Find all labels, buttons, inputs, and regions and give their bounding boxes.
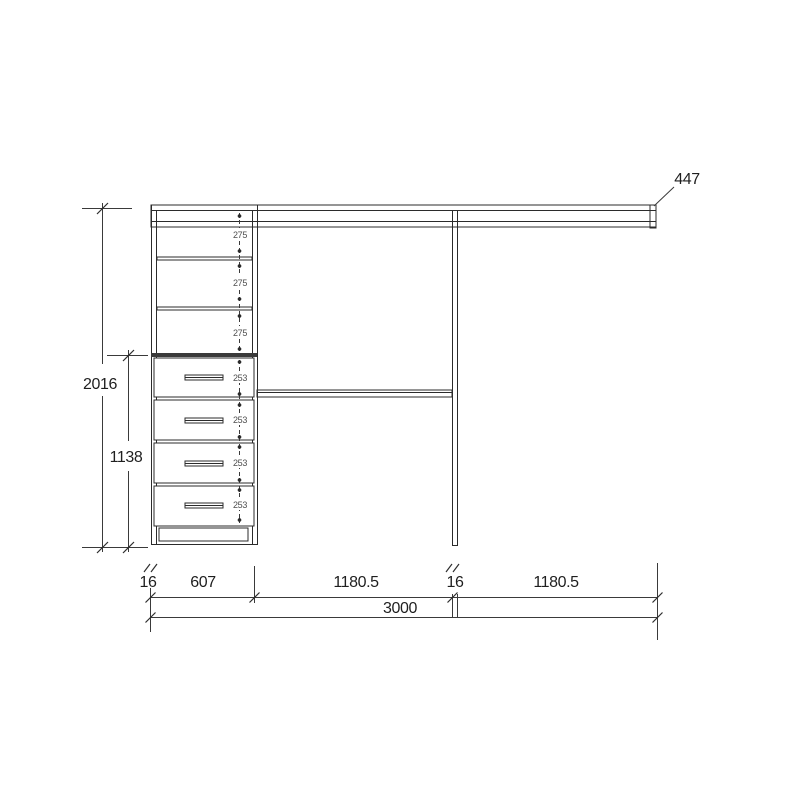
chain-dot — [238, 445, 242, 449]
label-drawer-height-2: 253 — [233, 415, 247, 425]
label-drawer-height-4: 253 — [233, 500, 247, 510]
micro-tick-left-16 — [151, 564, 157, 572]
label-drawer-height-3: 253 — [233, 458, 247, 468]
cabinet-shelf-1 — [157, 257, 252, 260]
middle-shelf-board — [257, 390, 452, 397]
label-width-seg-middle: 1180.5 — [333, 574, 379, 591]
chain-dot — [238, 403, 242, 407]
chain-dot — [238, 249, 242, 253]
label-drawer-height-1: 253 — [233, 373, 247, 383]
micro-tick-divider-16 — [453, 564, 459, 572]
label-width-seg-right: 1180.5 — [533, 574, 579, 591]
chain-dot — [238, 214, 242, 218]
chain-dot — [238, 264, 242, 268]
drawer-stack — [151, 358, 257, 545]
label-drawer-stack-height: 1138 — [110, 449, 143, 466]
chain-dot — [238, 347, 242, 351]
chain-dot — [238, 314, 242, 318]
chain-dot — [238, 360, 242, 364]
top-shelf — [151, 205, 656, 228]
label-width-seg-cabinet: 607 — [190, 574, 216, 591]
label-total-height: 2016 — [83, 376, 117, 393]
chain-dot — [238, 392, 242, 396]
plinth-panel — [159, 528, 248, 541]
chain-dot — [238, 435, 242, 439]
label-width-seg-divider: 16 — [447, 574, 464, 591]
micro-tick-divider-16 — [446, 564, 452, 572]
label-shelf-gap-3: 275 — [233, 328, 247, 338]
label-shelf-depth: 447 — [674, 171, 700, 188]
chain-dot — [238, 488, 242, 492]
wardrobe-elevation-drawing: 2016 1138 447 275 275 275 253 253 253 25… — [0, 0, 800, 800]
label-width-seg-left-panel: 16 — [140, 574, 157, 591]
drawer-top-board — [151, 353, 257, 357]
chain-dot — [238, 518, 242, 522]
chain-dot — [238, 478, 242, 482]
label-shelf-gap-2: 275 — [233, 278, 247, 288]
label-shelf-gap-1: 275 — [233, 230, 247, 240]
chain-dot — [238, 297, 242, 301]
micro-tick-left-16 — [144, 564, 150, 572]
top-shelf-board — [151, 205, 656, 227]
top-shelf-end-cap — [650, 205, 656, 228]
technical-drawing-canvas: 2016 1138 447 275 275 275 253 253 253 25… — [0, 0, 800, 800]
cabinet-shelf-2 — [157, 307, 252, 310]
middle-shelf — [257, 390, 452, 397]
vertical-divider — [452, 210, 458, 546]
label-total-width: 3000 — [383, 600, 417, 617]
leader-shelf-depth — [654, 187, 674, 206]
